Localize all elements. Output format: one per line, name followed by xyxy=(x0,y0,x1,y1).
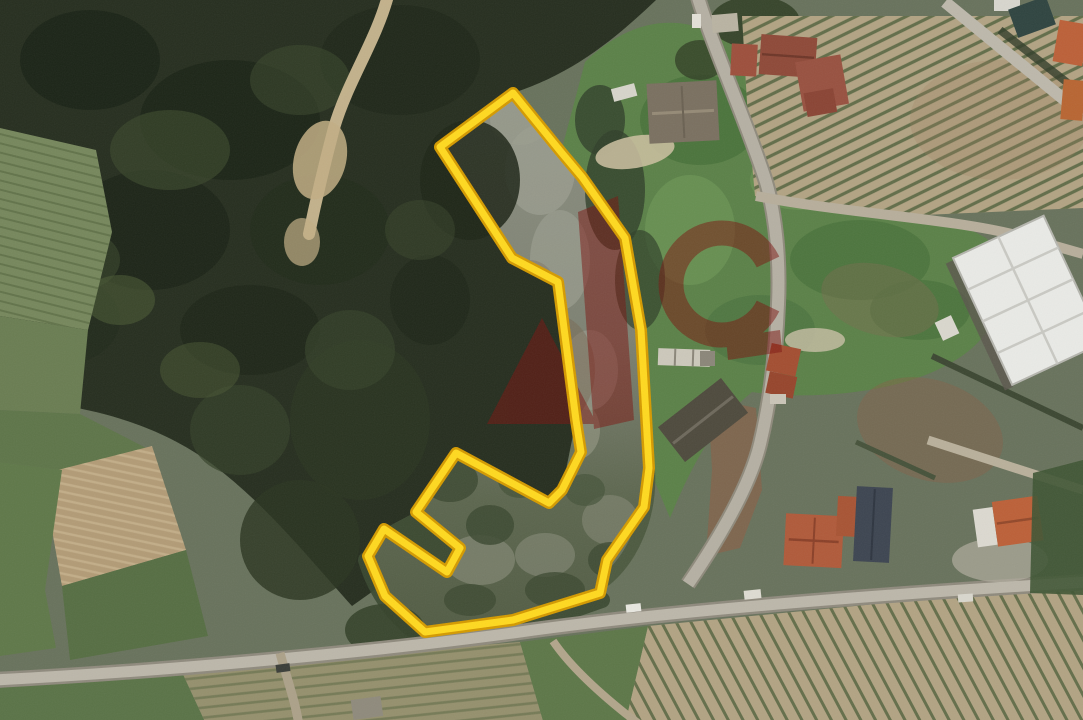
noise-overlay xyxy=(0,0,1083,720)
satellite-map-image xyxy=(0,0,1083,720)
map-canvas xyxy=(0,0,1083,720)
